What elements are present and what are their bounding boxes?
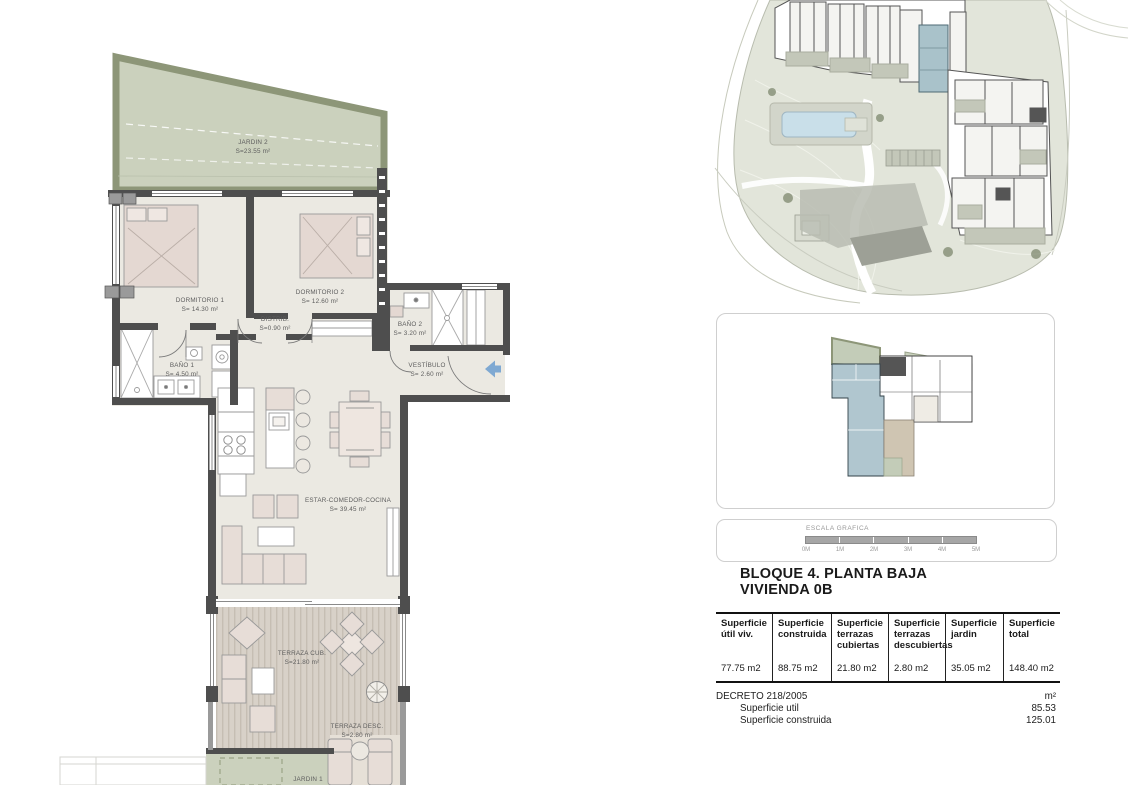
dormitorio2-label: DORMITORIO 2 xyxy=(296,289,345,296)
scale-bar-title: ESCALA GRAFICA xyxy=(806,525,869,532)
vestibulo-area: S= 2.60 m² xyxy=(411,371,444,378)
vestibulo-label: VESTÍBULO xyxy=(408,360,445,369)
jardin2-area: S=23.55 m² xyxy=(236,148,271,155)
column-value: 35.05 m2 xyxy=(951,663,1000,674)
scale-tick: 5M xyxy=(967,547,985,553)
table-column: Superficie jardin 35.05 m2 xyxy=(945,614,1003,681)
estar-area: S= 39.45 m² xyxy=(330,506,367,513)
terraza-cub-label: TERRAZA CUB. xyxy=(278,650,326,657)
column-header: Superficie construida xyxy=(778,618,828,654)
decreto-row-label: Superficie construida xyxy=(716,715,832,727)
column-value: 148.40 m2 xyxy=(1009,663,1057,674)
sheet-title-line2: VIVIENDA 0B xyxy=(740,582,927,598)
scale-tick: 0M xyxy=(797,547,815,553)
highlighted-unit xyxy=(919,25,948,92)
column-value: 21.80 m2 xyxy=(837,663,885,674)
plan-sheet: JARDIN 2 S=23.55 m² DORMITORIO 1 S= 14.3… xyxy=(0,0,1129,785)
bano2-label: BAÑO 2 xyxy=(398,319,423,328)
distrib-label: DISTRIB. xyxy=(261,316,289,323)
dormitorio1-label: DORMITORIO 1 xyxy=(176,297,225,304)
scale-tick: 4M xyxy=(933,547,951,553)
decreto-row-value: 125.01 xyxy=(1026,715,1056,727)
sheet-title: BLOQUE 4. PLANTA BAJA VIVIENDA 0B xyxy=(740,566,927,598)
column-value: 2.80 m2 xyxy=(894,663,942,674)
pool xyxy=(770,103,872,145)
estar-label: ESTAR-COMEDOR-COCINA xyxy=(305,497,392,504)
jardin-2 xyxy=(116,57,384,190)
bano1-area: S= 4.50 m² xyxy=(166,371,199,378)
column-header: Superficie terrazas cubiertas xyxy=(837,618,885,654)
bottom-left-structure xyxy=(60,757,206,785)
column-header: Superficie jardin xyxy=(951,618,1000,654)
column-value: 77.75 m2 xyxy=(721,663,769,674)
decreto-row-label: Superficie util xyxy=(716,703,799,715)
site-plan xyxy=(715,0,1128,303)
table-column: Superficie terrazas descubiertas 2.80 m2 xyxy=(888,614,945,681)
building-cluster-east xyxy=(948,70,1052,244)
terraza-desc-area: S=2.80 m² xyxy=(341,732,372,739)
decreto-title: DECRETO 218/2005 xyxy=(716,691,807,703)
decreto-block: DECRETO 218/2005 m² Superficie util 85.5… xyxy=(716,691,1056,727)
sheet-title-line1: BLOQUE 4. PLANTA BAJA xyxy=(740,566,927,582)
scale-bar xyxy=(805,536,977,544)
table-column: Superficie total 148.40 m2 xyxy=(1003,614,1060,681)
bano2-area: S= 3.20 m² xyxy=(394,330,427,337)
column-header: Superficie total xyxy=(1009,618,1057,654)
areas-table: Superficie útil viv. 77.75 m2 Superficie… xyxy=(716,612,1060,683)
table-column: Superficie terrazas cubiertas 21.80 m2 xyxy=(831,614,888,681)
scale-bar-panel: ESCALA GRAFICA 0M 1M 2M 3M 4M 5M xyxy=(716,519,1057,562)
scale-tick: 3M xyxy=(899,547,917,553)
terraza-desc-label: TERRAZA DESC. xyxy=(331,723,384,730)
distrib-area: S=0.90 m² xyxy=(259,325,290,332)
decreto-unit: m² xyxy=(1045,691,1056,703)
column-header: Superficie terrazas descubiertas xyxy=(894,618,942,654)
terraza-cub-area: S=21.80 m² xyxy=(285,659,320,666)
table-column: Superficie construida 88.75 m2 xyxy=(772,614,831,681)
bano1-label: BAÑO 1 xyxy=(170,360,195,369)
jardin2-label: JARDIN 2 xyxy=(238,139,268,146)
floor-plan: JARDIN 2 S=23.55 m² DORMITORIO 1 S= 14.3… xyxy=(60,57,510,785)
scale-tick: 1M xyxy=(831,547,849,553)
hatched-wall xyxy=(377,168,387,313)
column-value: 88.75 m2 xyxy=(778,663,828,674)
scale-tick: 2M xyxy=(865,547,883,553)
key-plan-panel xyxy=(716,313,1055,509)
decreto-row-value: 85.53 xyxy=(1031,703,1056,715)
dormitorio1-area: S= 14.30 m² xyxy=(182,306,219,313)
column-header: Superficie útil viv. xyxy=(721,618,769,654)
table-column: Superficie útil viv. 77.75 m2 xyxy=(716,614,772,681)
dormitorio2-area: S= 12.60 m² xyxy=(302,298,339,305)
jardin1-label: JARDIN 1 xyxy=(293,776,323,783)
scale-bar-ticks: 0M 1M 2M 3M 4M 5M xyxy=(797,547,985,557)
